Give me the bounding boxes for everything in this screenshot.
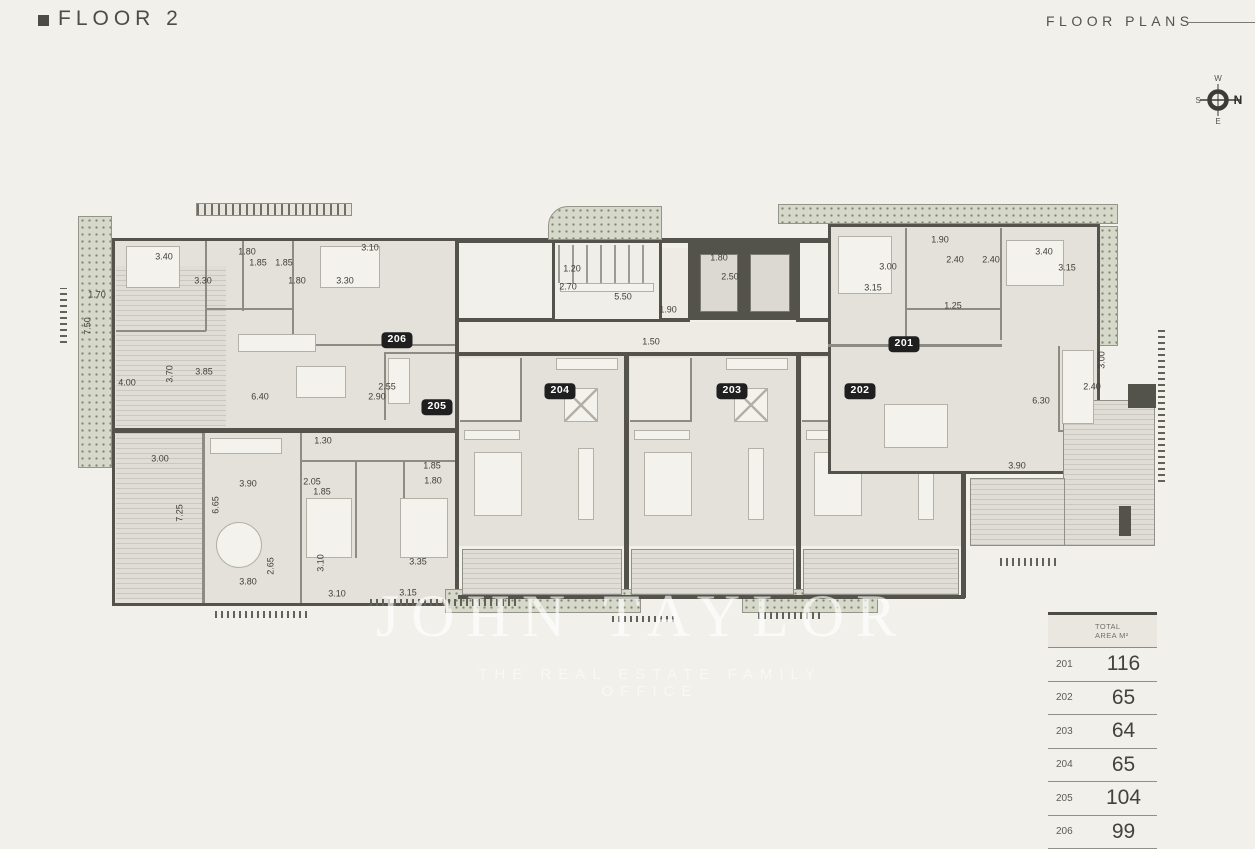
dimension-label: 3.10	[328, 590, 346, 599]
dimension-label: 3.15	[399, 589, 417, 598]
terrace	[970, 478, 1065, 546]
dimension-label: 2.40	[946, 256, 964, 265]
bed	[400, 498, 448, 558]
unit-badge-205: 205	[421, 399, 452, 415]
bathroom	[630, 358, 690, 420]
dining-table	[884, 404, 948, 448]
unit-area: 104	[1090, 786, 1157, 810]
wardrobe	[634, 430, 690, 440]
dimension-label: 1.80	[238, 248, 256, 257]
dimension-label: 2.65	[267, 557, 276, 575]
area-table-row-203: 20364	[1048, 715, 1157, 749]
bathroom	[460, 358, 520, 420]
wall	[658, 318, 690, 322]
partition	[384, 352, 456, 354]
unit-badge-201: 201	[888, 336, 919, 352]
tick-strip	[1000, 558, 1060, 566]
tick-strip	[60, 288, 67, 343]
wall	[455, 238, 459, 606]
wall	[796, 356, 801, 598]
partition	[202, 433, 205, 603]
dimension-label: 1.80	[424, 477, 442, 486]
unit-badge-204: 204	[544, 383, 575, 399]
unit-number: 206	[1048, 826, 1090, 837]
sofa	[748, 448, 764, 520]
dimension-label: 3.90	[239, 480, 257, 489]
area-table-row-201: 201116	[1048, 648, 1157, 682]
dimension-label: 3.15	[864, 284, 882, 293]
partition	[520, 358, 522, 422]
dimension-label: 1.80	[288, 277, 306, 286]
dimension-label: 7.50	[84, 317, 93, 335]
partition	[205, 241, 207, 331]
area-table-row-206: 20699	[1048, 816, 1157, 849]
sofa	[238, 334, 316, 352]
unit-number: 204	[1048, 759, 1090, 770]
dimension-label: 3.85	[195, 368, 213, 377]
tick-strip	[215, 611, 310, 618]
dimension-label: 1.85	[249, 259, 267, 268]
partition	[690, 358, 692, 422]
balcony	[462, 549, 622, 595]
dimension-label: 2.90	[368, 393, 386, 402]
partition	[905, 228, 907, 346]
hedge-band	[196, 203, 352, 216]
dimension-label: 2.40	[982, 256, 1000, 265]
planter-strip	[548, 206, 662, 240]
unit-number: 202	[1048, 692, 1090, 703]
dimension-label: 3.00	[151, 455, 169, 464]
dimension-label: 2.50	[721, 273, 739, 282]
dimension-label: 1.85	[313, 488, 331, 497]
dimension-label: 5.50	[614, 293, 632, 302]
terrace	[116, 266, 226, 426]
planter-strip	[778, 204, 1118, 224]
unit-badge-202: 202	[844, 383, 875, 399]
tick-strip	[758, 612, 820, 619]
pillar	[1119, 506, 1131, 536]
lift-cabin	[700, 254, 738, 312]
unit-area: 99	[1090, 820, 1157, 844]
tick-strip	[612, 616, 674, 622]
partition	[116, 330, 206, 332]
unit-area: 64	[1090, 719, 1157, 743]
lift-cabin	[750, 254, 790, 312]
dimension-label: 3.00	[879, 263, 897, 272]
tick-strip	[370, 599, 520, 606]
area-table: TOTAL AREA M² 20111620265203642046520510…	[1048, 612, 1157, 849]
dimension-label: 2.05	[303, 478, 321, 487]
balcony	[803, 549, 959, 595]
dimension-label: 3.00	[1098, 351, 1107, 369]
area-table-header-line2: AREA M²	[1095, 631, 1157, 640]
dimension-label: 1.25	[944, 302, 962, 311]
partition	[300, 433, 302, 603]
unit-number: 205	[1048, 793, 1090, 804]
dimension-label: 3.80	[239, 578, 257, 587]
wall	[458, 318, 554, 322]
partition	[1000, 228, 1002, 340]
dimension-label: 3.40	[1035, 248, 1053, 257]
unit-number: 203	[1048, 726, 1090, 737]
kitchen-counter	[556, 358, 618, 370]
bed	[644, 452, 692, 516]
bed	[474, 452, 522, 516]
planter-strip	[1098, 226, 1118, 346]
unit-area: 116	[1090, 652, 1157, 676]
unit-number: 201	[1048, 659, 1090, 670]
dimension-label: 3.40	[155, 253, 173, 262]
dimension-label: 3.35	[409, 558, 427, 567]
dimension-label: 1.85	[423, 462, 441, 471]
partition	[292, 344, 456, 346]
partition	[630, 420, 692, 422]
dimension-label: 3.30	[336, 277, 354, 286]
dimension-label: 1.20	[563, 265, 581, 274]
wall	[112, 428, 458, 433]
dimension-label: 2.70	[559, 283, 577, 292]
kitchen-counter	[726, 358, 788, 370]
dimension-label: 1.50	[642, 338, 660, 347]
dimension-label: 2.40	[1083, 383, 1101, 392]
wall	[458, 595, 965, 599]
area-table-row-205: 205104	[1048, 782, 1157, 816]
partition	[206, 308, 294, 310]
area-table-header: TOTAL AREA M²	[1048, 615, 1157, 648]
bed	[306, 498, 352, 558]
unit-area: 65	[1090, 686, 1157, 710]
unit-area: 65	[1090, 753, 1157, 777]
wall	[624, 356, 629, 598]
unit-badge-203: 203	[716, 383, 747, 399]
dimension-label: 2.55	[378, 383, 396, 392]
dimension-label: 3.10	[361, 244, 379, 253]
sofa	[210, 438, 282, 454]
partition	[1058, 346, 1060, 432]
area-table-row-202: 20265	[1048, 682, 1157, 716]
dimension-label: 1.30	[314, 437, 332, 446]
dimension-label: 7.25	[176, 504, 185, 522]
balcony	[631, 549, 794, 595]
dimension-label: 3.10	[317, 554, 326, 572]
sofa	[578, 448, 594, 520]
dimension-label: 3.15	[1058, 264, 1076, 273]
dining-table	[296, 366, 346, 398]
dimension-label: 1.80	[710, 254, 728, 263]
dimension-label: 1.90	[931, 236, 949, 245]
dimension-label: 3.70	[166, 365, 175, 383]
dimension-label: 4.00	[118, 379, 136, 388]
dimension-label: 1.85	[275, 259, 293, 268]
partition	[355, 460, 357, 558]
dimension-label: 1.70	[88, 291, 106, 300]
dimension-label: 3.30	[194, 277, 212, 286]
area-table-header-line1: TOTAL	[1095, 622, 1157, 631]
dimension-label: 6.30	[1032, 397, 1050, 406]
partition	[460, 420, 522, 422]
shaft	[1128, 384, 1156, 408]
dimension-label: 3.90	[1008, 462, 1026, 471]
dimension-label: 6.40	[251, 393, 269, 402]
tick-strip	[1158, 330, 1165, 482]
dimension-label: 1.90	[659, 306, 677, 315]
round-table	[216, 522, 262, 568]
unit-badge-206: 206	[381, 332, 412, 348]
area-table-row-204: 20465	[1048, 749, 1157, 783]
wardrobe	[464, 430, 520, 440]
dimension-label: 6.65	[212, 496, 221, 514]
planter-strip	[78, 216, 112, 468]
